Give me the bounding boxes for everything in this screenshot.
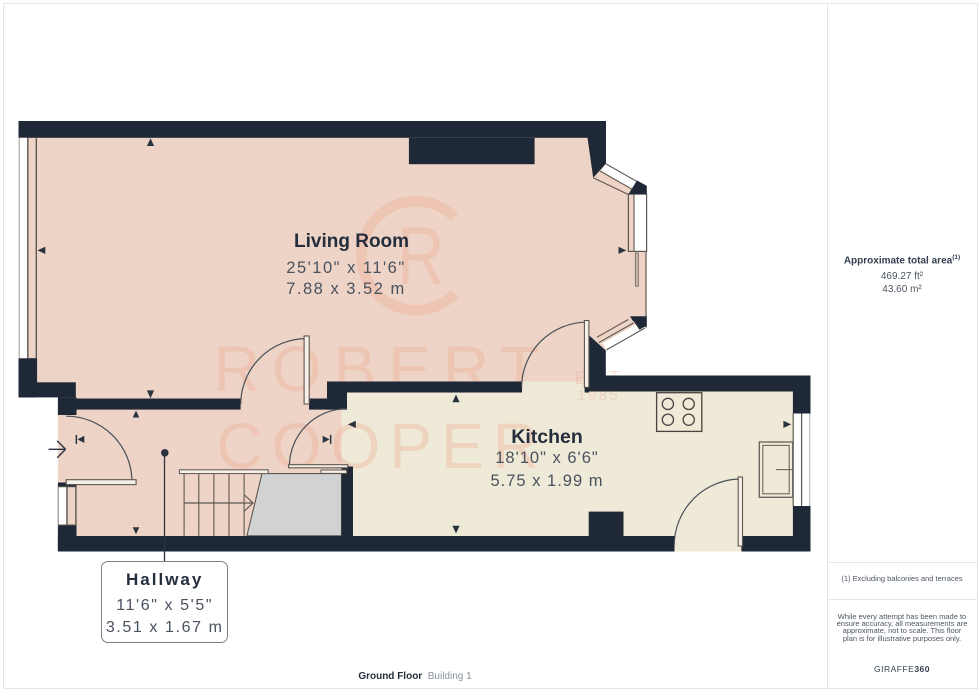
svg-text:ROBERT: ROBERT <box>214 333 552 405</box>
